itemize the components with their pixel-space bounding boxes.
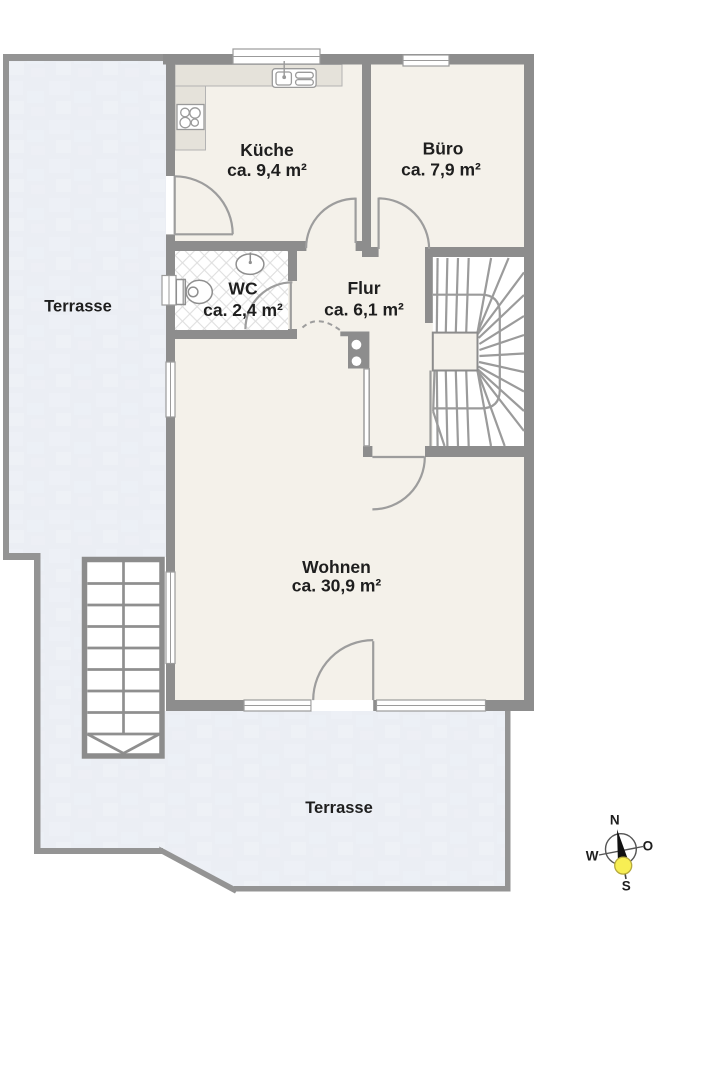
svg-text:Flur: Flur <box>347 278 380 298</box>
svg-text:Terrasse: Terrasse <box>305 799 373 817</box>
svg-text:W: W <box>586 849 599 864</box>
svg-text:S: S <box>622 879 631 894</box>
svg-text:Terrasse: Terrasse <box>44 298 112 316</box>
svg-text:ca. 6,1 m²: ca. 6,1 m² <box>324 300 404 320</box>
svg-text:Wohnen: Wohnen <box>302 557 371 577</box>
svg-text:O: O <box>643 839 654 854</box>
svg-text:ca. 30,9 m²: ca. 30,9 m² <box>292 576 382 596</box>
svg-text:ca. 9,4 m²: ca. 9,4 m² <box>227 160 307 180</box>
svg-text:ca. 2,4 m²: ca. 2,4 m² <box>203 300 283 320</box>
svg-text:WC: WC <box>228 279 258 299</box>
svg-text:Büro: Büro <box>423 139 464 159</box>
svg-text:N: N <box>610 813 620 828</box>
svg-text:ca. 7,9 m²: ca. 7,9 m² <box>401 160 481 180</box>
svg-text:Küche: Küche <box>240 140 294 160</box>
